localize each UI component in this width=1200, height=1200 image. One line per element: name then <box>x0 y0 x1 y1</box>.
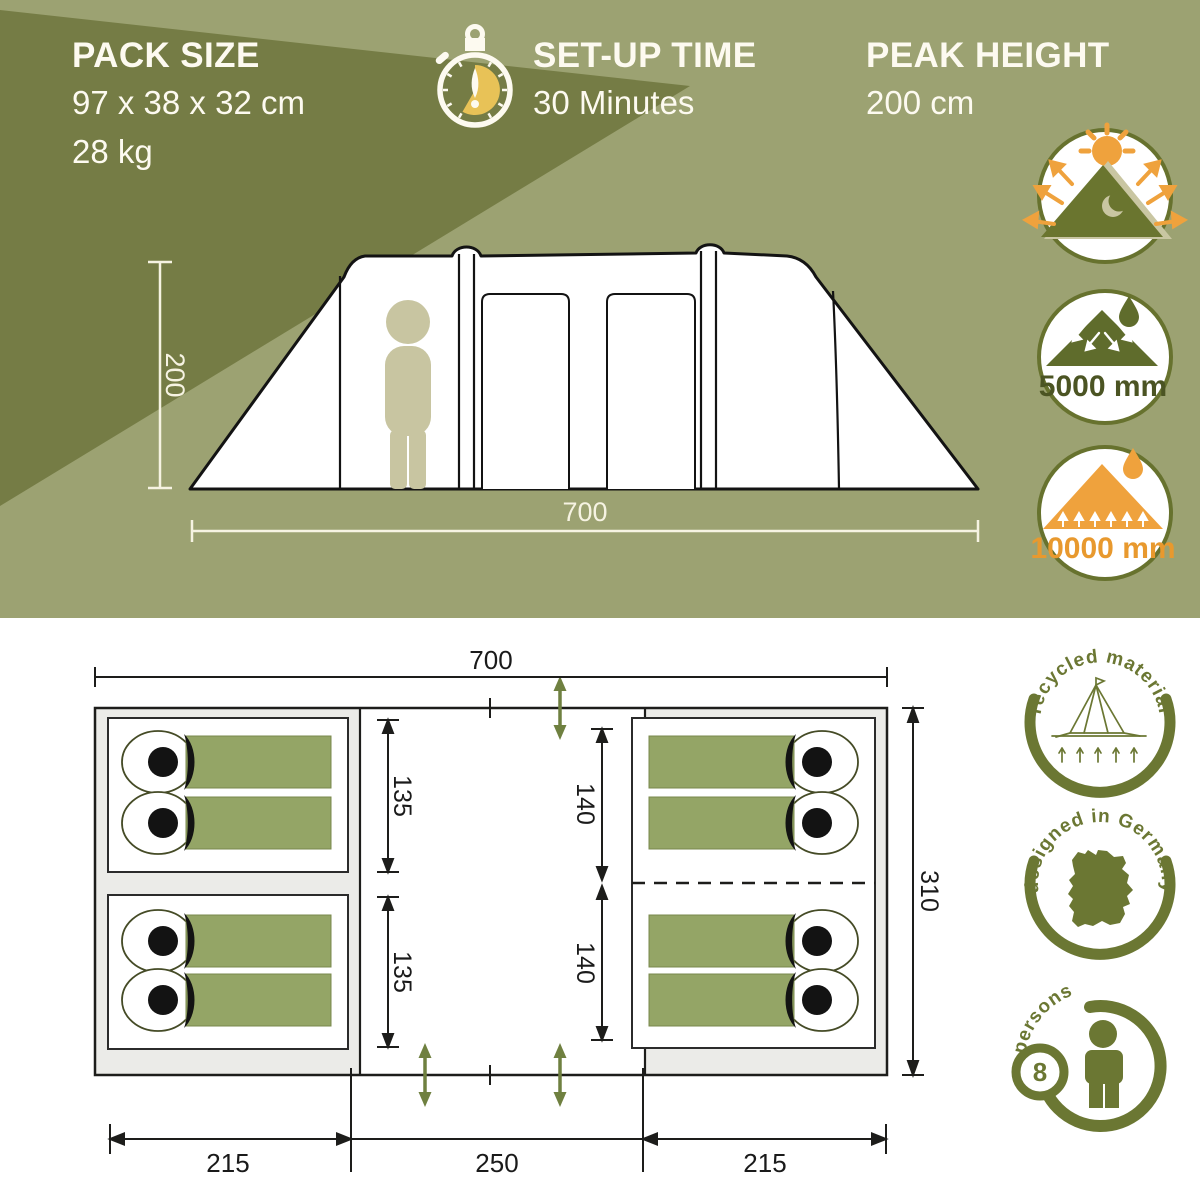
svg-text:recycled material: recycled material <box>1025 646 1176 715</box>
left-cabin-bottom-label: 135 <box>388 951 416 993</box>
stopwatch-icon <box>434 27 510 126</box>
floorplan: 700 310 135 135 140 140 215 250 215 <box>95 645 943 1178</box>
plan-width-label: 700 <box>469 645 512 675</box>
person-icon <box>1085 1020 1123 1108</box>
designed-in-germany-badge: designed in Germany <box>1022 806 1178 954</box>
germany-map-icon <box>1068 850 1133 927</box>
pack-size-weight: 28 kg <box>72 135 153 168</box>
uv-protection-badge <box>1026 125 1184 262</box>
segment-middle-label: 250 <box>475 1148 518 1178</box>
segment-left-label: 215 <box>206 1148 249 1178</box>
left-cabin-top-label: 135 <box>388 775 416 817</box>
segment-right-label: 215 <box>743 1148 786 1178</box>
setup-time-value: 30 Minutes <box>533 86 694 119</box>
pack-size-dimensions: 97 x 38 x 32 cm <box>72 86 305 119</box>
pack-size-title: PACK SIZE <box>72 38 260 73</box>
recycled-material-badge: recycled material <box>1025 646 1176 792</box>
peak-height-value: 200 cm <box>866 86 974 119</box>
artwork: 200 700 <box>0 0 1200 1200</box>
persons-badge: persons 8 <box>1009 980 1160 1126</box>
tent-width-label: 700 <box>562 497 607 527</box>
peak-height-title: PEAK HEIGHT <box>866 38 1110 73</box>
persons-count: 8 <box>1033 1057 1047 1087</box>
recycled-material-label: recycled material <box>1025 646 1176 715</box>
right-cabin-bottom-label: 140 <box>571 942 599 984</box>
tent-side-view: 200 700 <box>148 245 978 542</box>
groundsheet-rating-label: 10000 mm <box>1030 532 1175 565</box>
plan-depth-label: 310 <box>915 870 943 912</box>
right-cabin-top-label: 140 <box>571 783 599 825</box>
tent-height-label: 200 <box>160 352 190 397</box>
flysheet-water-badge: 5000 mm <box>1039 291 1171 423</box>
flysheet-rating-label: 5000 mm <box>1039 370 1167 403</box>
setup-time-title: SET-UP TIME <box>533 38 757 73</box>
line-tent-icon <box>1052 678 1146 762</box>
groundsheet-water-badge: 10000 mm <box>1030 447 1175 579</box>
